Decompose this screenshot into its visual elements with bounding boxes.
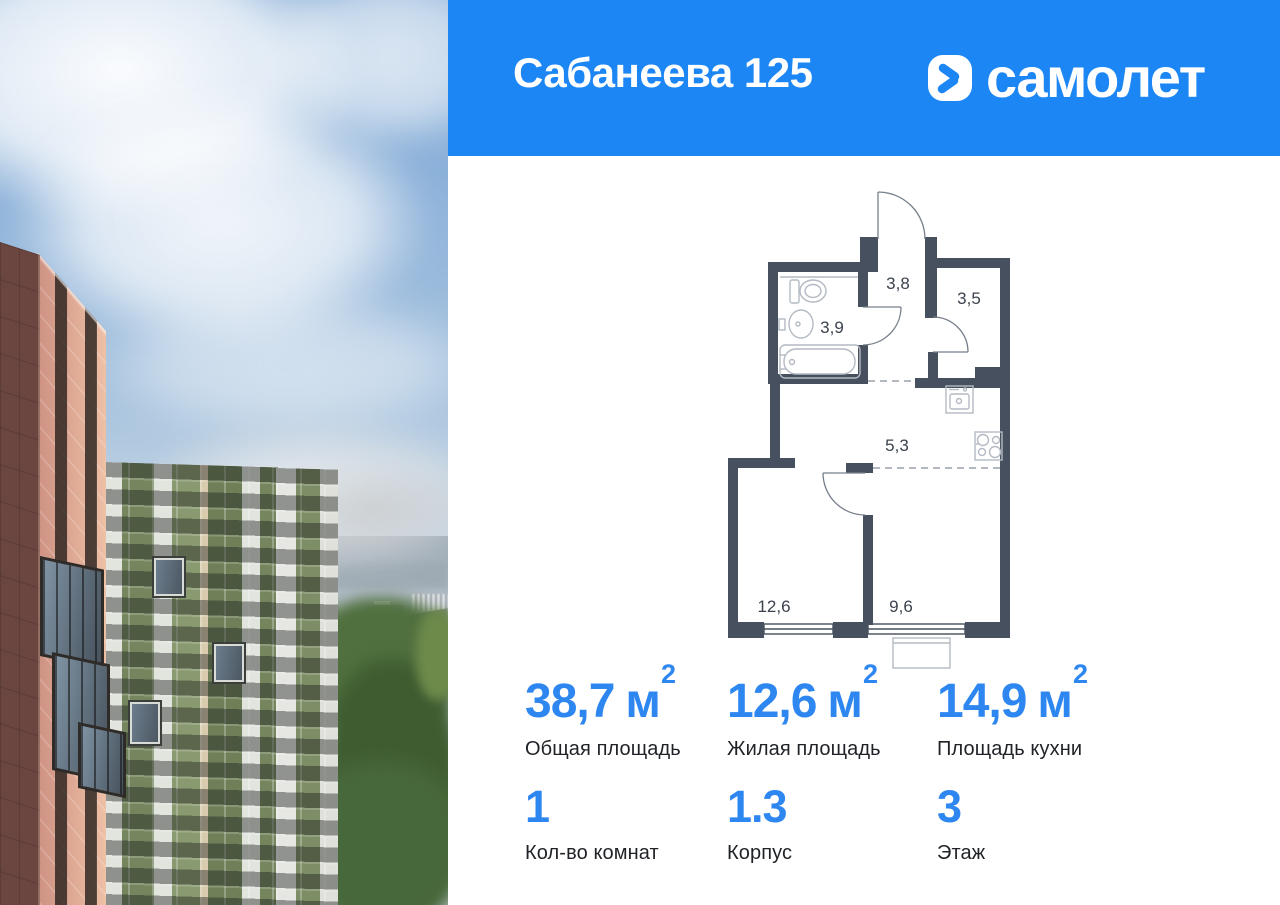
stat-value: 1 (525, 784, 659, 829)
green-building-side-tower (276, 468, 338, 905)
balcony-outline (893, 638, 950, 668)
stat-value: 38,7м2 (525, 678, 681, 726)
stat-label: Жилая площадь (727, 738, 881, 761)
room-area-hallway: 3,8 (886, 274, 910, 293)
room-area-kitchen: 9,6 (889, 597, 913, 616)
bathtub-icon (780, 345, 860, 378)
unit-sup: 2 (1073, 659, 1087, 689)
value: 38,7 (525, 675, 614, 728)
samolet-logo-text: самолет (986, 50, 1205, 106)
samolet-logo: самолет (928, 0, 1205, 156)
stat-label: Этаж (937, 842, 985, 865)
stat-value: 14,9м2 (937, 678, 1087, 726)
unit: м (827, 675, 862, 728)
stat-living-area: 12,6м2 Жилая площадь (727, 678, 881, 761)
stat-total-area: 38,7м2 Общая площадь (525, 678, 681, 761)
doors (823, 192, 968, 515)
balcony (128, 700, 162, 746)
unit-sup: 2 (863, 659, 877, 689)
toilet-icon (790, 280, 826, 303)
stat-label: Кол-во комнат (525, 842, 659, 865)
stat-building-number: 1.3 Корпус (727, 784, 792, 865)
room-area-corridor: 5,3 (885, 436, 909, 455)
value: 12,6 (727, 675, 816, 728)
unit-sup: 2 (661, 659, 675, 689)
value: 14,9 (937, 675, 1026, 728)
stat-kitchen-area: 14,9м2 Площадь кухни (937, 678, 1087, 761)
sink-icon (779, 310, 813, 338)
stat-value: 3 (937, 784, 985, 829)
green-striped-building (104, 462, 278, 905)
room-area-storage: 3,5 (957, 289, 981, 308)
balcony (152, 556, 186, 598)
room-area-living-room: 12,6 (757, 597, 790, 616)
listing-card: Сабанеева 125 самолет (0, 0, 1280, 905)
unit: м (625, 675, 660, 728)
kitchen-sink-icon (946, 386, 973, 413)
stat-label: Площадь кухни (937, 738, 1087, 761)
unit: м (1037, 675, 1072, 728)
plane-chevron-icon (928, 55, 972, 101)
building-photo (0, 0, 448, 905)
stat-label: Корпус (727, 842, 792, 865)
trees (416, 610, 448, 700)
floor-plan: 3,8 3,5 3,9 5,3 12,6 9,6 (700, 180, 1020, 680)
stat-value: 1.3 (727, 784, 792, 829)
room-area-bathroom: 3,9 (820, 318, 844, 337)
stat-floor-number: 3 Этаж (937, 784, 985, 865)
project-title: Сабанеева 125 (513, 49, 812, 97)
glass-balcony (40, 556, 104, 670)
balcony (212, 642, 246, 684)
stat-rooms-count: 1 Кол-во комнат (525, 784, 659, 865)
maroon-building-side (0, 242, 40, 905)
glass-balcony (78, 722, 126, 798)
stove-icon (975, 432, 1002, 460)
stat-label: Общая площадь (525, 738, 681, 761)
samolet-logo-icon (928, 55, 972, 101)
stat-value: 12,6м2 (727, 678, 881, 726)
cloud (90, 290, 448, 440)
